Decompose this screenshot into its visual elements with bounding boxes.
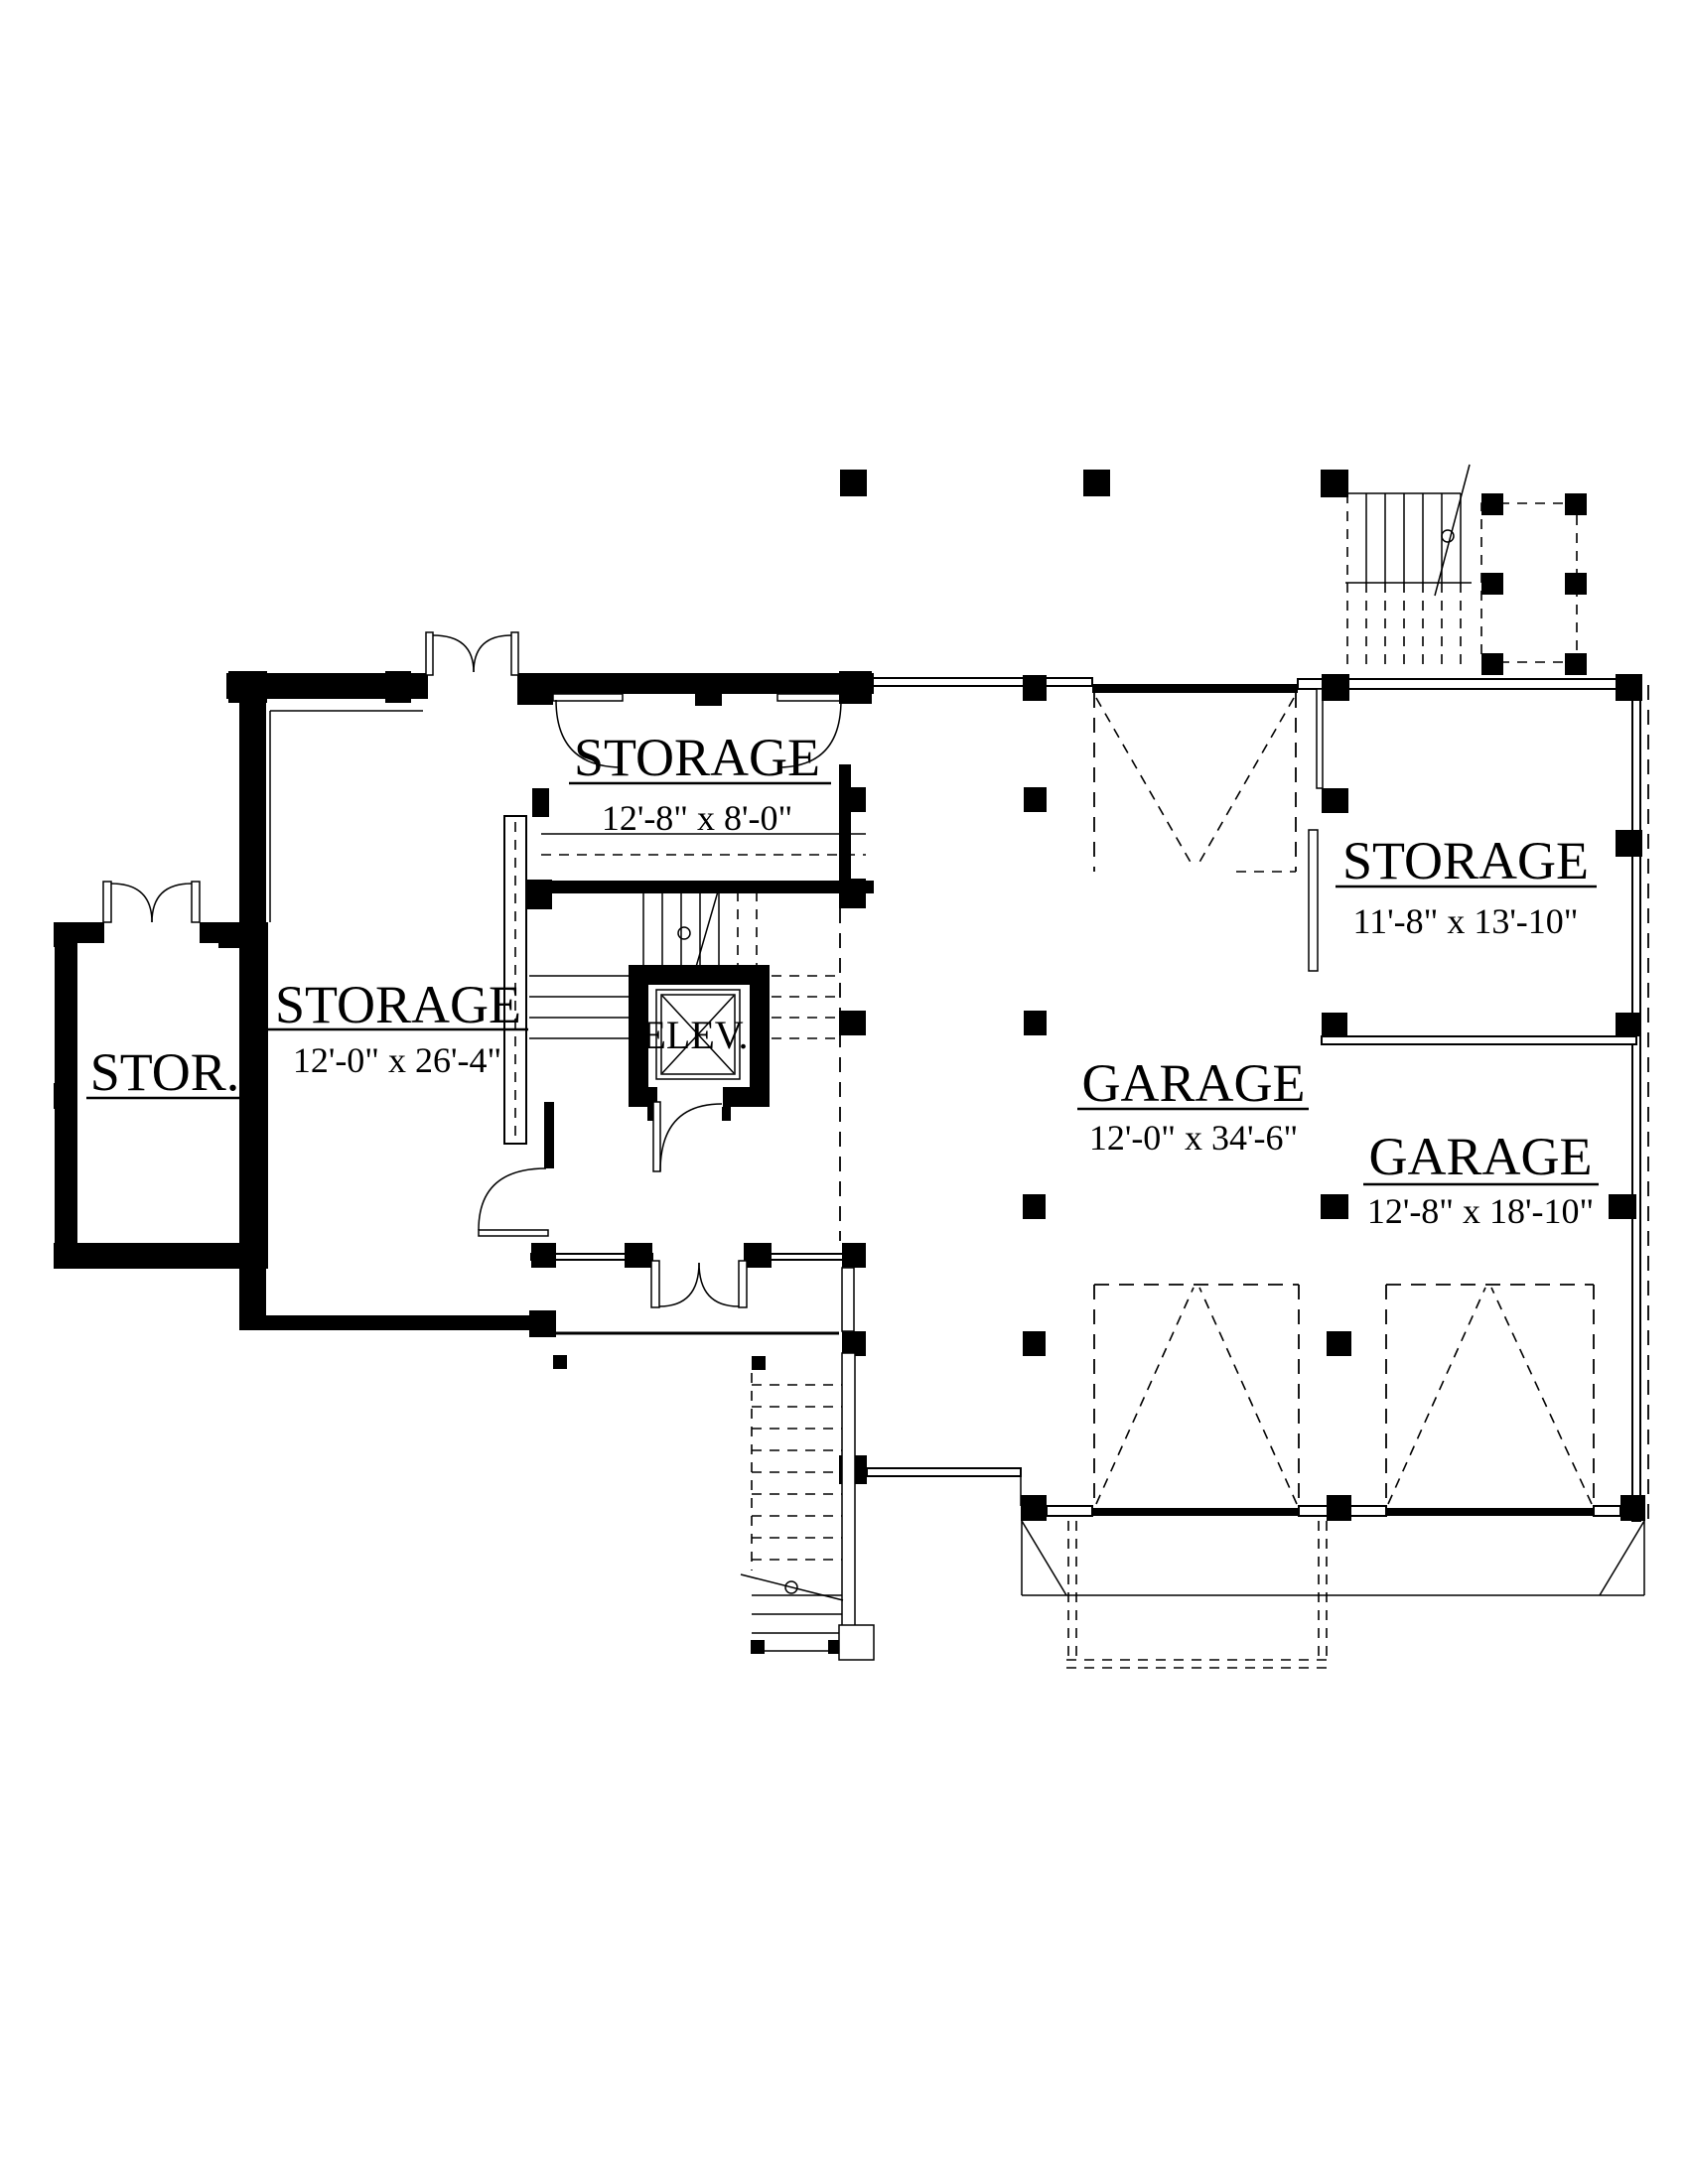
floor-plan-drawing: STORAGE 12'-8" x 8'-0" STORAGE 12'-0" x … — [0, 0, 1688, 2184]
garage-door-bottom-left — [1092, 1285, 1299, 1516]
room-dims-storage-left: 12'-0" x 26'-4" — [293, 1040, 501, 1080]
room-label-storage-right: STORAGE — [1342, 831, 1589, 890]
french-door-porch — [651, 1261, 747, 1307]
room-label-storage-left: STORAGE — [275, 975, 521, 1034]
stair-direction-arrow — [1435, 465, 1470, 596]
french-door-top — [426, 632, 518, 675]
top-right-stair — [1345, 465, 1587, 675]
apron — [1022, 1521, 1644, 1595]
garage-door-bottom-right — [1386, 1285, 1594, 1516]
right-storage-door-leaf — [1309, 830, 1318, 971]
room-label-garage-right: GARAGE — [1369, 1127, 1593, 1186]
room-label-storage-top: STORAGE — [574, 728, 820, 787]
floor-plan-sheet: STORAGE 12'-8" x 8'-0" STORAGE 12'-0" x … — [0, 0, 1688, 2184]
thin-walls — [270, 678, 1648, 1521]
double-door-stor — [103, 882, 200, 922]
room-dims-garage-right: 12'-8" x 18'-10" — [1367, 1191, 1594, 1231]
garage-door-top — [1094, 693, 1296, 872]
room-label-garage-main: GARAGE — [1082, 1053, 1306, 1113]
room-dims-storage-right: 11'-8" x 13'-10" — [1352, 901, 1578, 941]
stair-direction-arrow — [741, 1574, 843, 1600]
elevator-lobby-door — [653, 1102, 722, 1171]
stair-landing — [1481, 493, 1587, 675]
room-label-elevator: ELEV. — [641, 1013, 748, 1057]
driveway — [1066, 1521, 1329, 1668]
room-label-stor: STOR. — [90, 1042, 240, 1102]
bottom-stair — [741, 1353, 874, 1660]
storage-hall-door — [479, 1168, 548, 1236]
stair-direction-arrow — [678, 891, 718, 967]
room-dims-garage-main: 12'-0" x 34'-6" — [1089, 1118, 1298, 1158]
room-dims-storage-top: 12'-8" x 8'-0" — [602, 798, 792, 838]
